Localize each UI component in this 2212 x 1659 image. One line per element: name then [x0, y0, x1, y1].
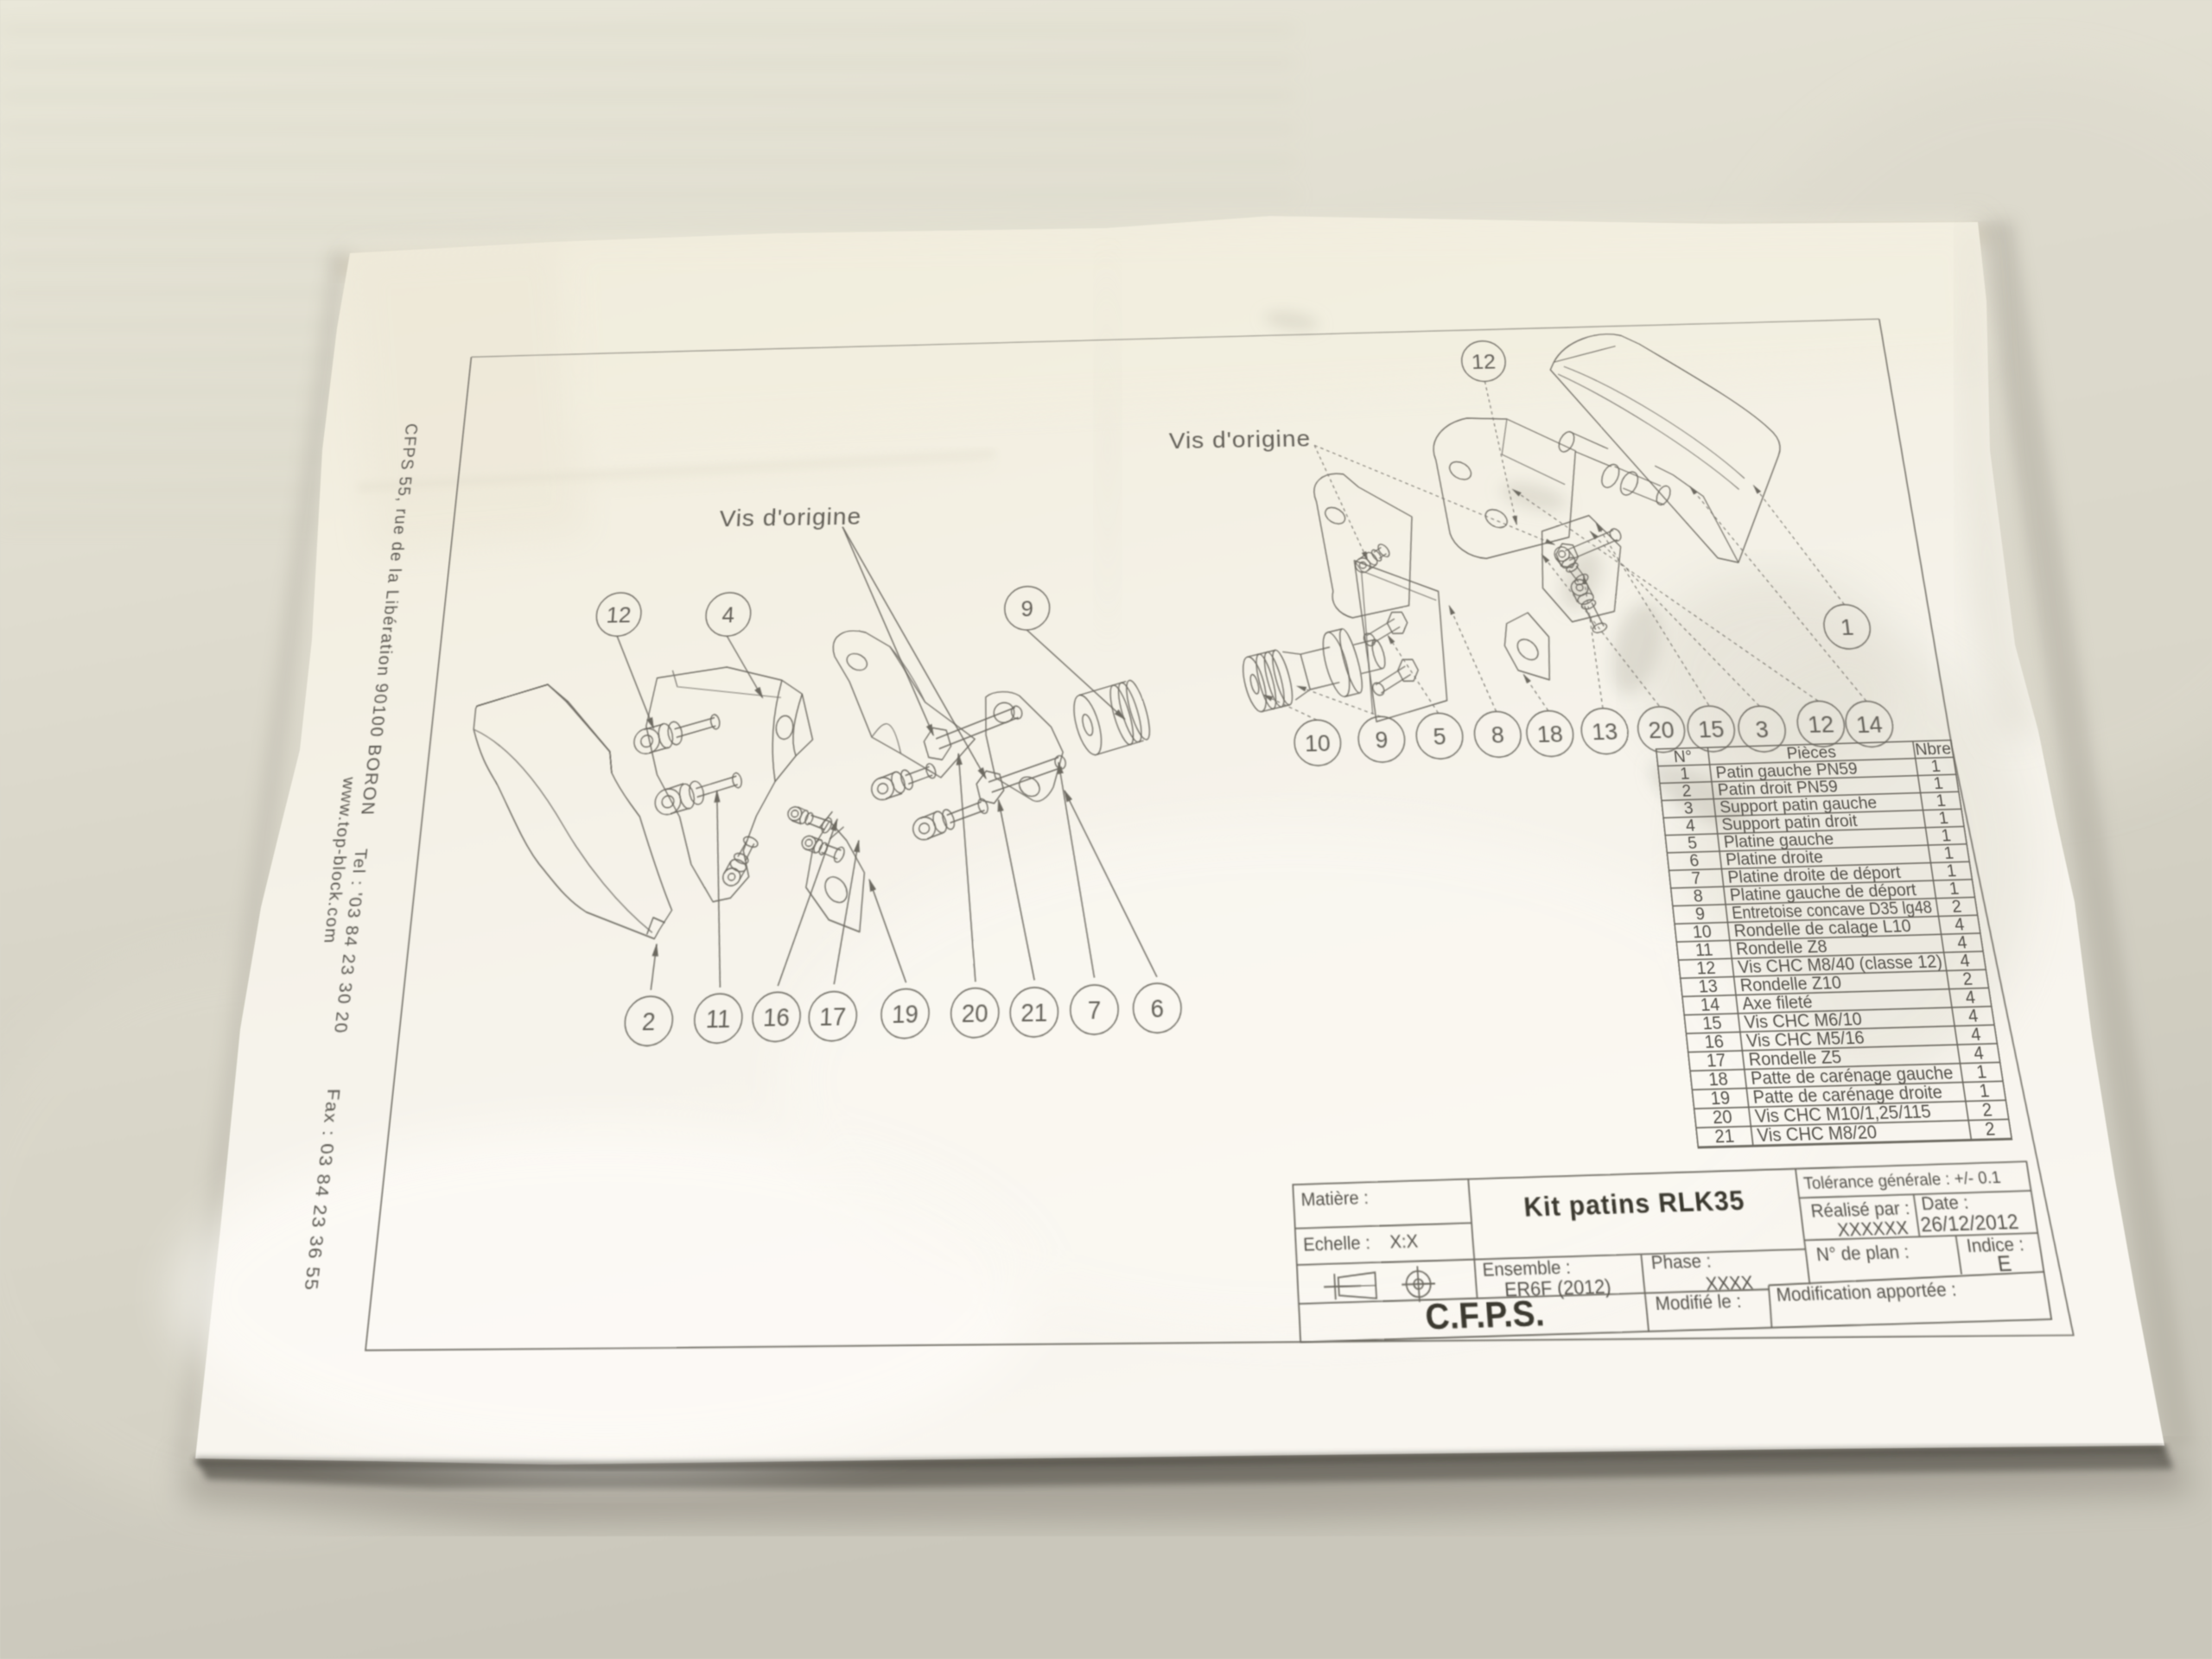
svg-text:N°: N°	[1673, 747, 1694, 766]
svg-text:18: 18	[1707, 1070, 1729, 1090]
svg-text:1: 1	[1929, 757, 1942, 775]
svg-text:Fax : 03 84 23 36 55: Fax : 03 84 23 36 55	[301, 1089, 344, 1292]
svg-text:4: 4	[1954, 915, 1966, 935]
svg-text:20: 20	[1647, 716, 1675, 743]
svg-text:2: 2	[1950, 897, 1962, 916]
svg-text:Echelle :: Echelle :	[1303, 1232, 1371, 1255]
svg-text:11: 11	[705, 1004, 731, 1033]
svg-text:18: 18	[1536, 721, 1564, 747]
svg-text:14: 14	[1700, 995, 1720, 1015]
svg-text:14: 14	[1855, 711, 1885, 738]
svg-text:26/12/2012: 26/12/2012	[1919, 1210, 2020, 1236]
svg-text:4: 4	[1959, 951, 1971, 971]
svg-text:4: 4	[1964, 988, 1976, 1007]
svg-text:13: 13	[1698, 976, 1719, 996]
svg-text:16: 16	[1704, 1032, 1726, 1052]
svg-text:1: 1	[1840, 614, 1855, 639]
svg-text:12: 12	[1695, 958, 1716, 978]
svg-text:12: 12	[606, 602, 632, 627]
svg-text:8: 8	[1491, 721, 1505, 747]
svg-text:Tolérance générale : +/- 0.1: Tolérance générale : +/- 0.1	[1802, 1169, 2002, 1193]
svg-text:20: 20	[962, 999, 988, 1027]
svg-text:8: 8	[1693, 887, 1704, 906]
svg-text:1: 1	[1679, 765, 1690, 783]
svg-text:1: 1	[1975, 1062, 1988, 1083]
svg-text:4: 4	[1956, 933, 1968, 953]
svg-text:9: 9	[1694, 905, 1706, 924]
svg-text:17: 17	[1706, 1051, 1727, 1071]
svg-text:Vis d'origine: Vis d'origine	[719, 504, 862, 532]
svg-text:1: 1	[1932, 774, 1944, 793]
svg-text:2: 2	[1984, 1119, 1997, 1140]
svg-text:1: 1	[1948, 880, 1960, 899]
svg-text:3: 3	[1754, 716, 1770, 742]
svg-text:4: 4	[1967, 1007, 1980, 1027]
svg-text:Modifié le :: Modifié le :	[1655, 1291, 1743, 1315]
svg-text:CFPS 55, rue de la Libération: CFPS 55, rue de la Libération 90100 BORO…	[357, 423, 421, 817]
svg-text:17: 17	[819, 1002, 847, 1031]
svg-text:4: 4	[1969, 1025, 1982, 1045]
svg-text:16: 16	[762, 1003, 790, 1032]
svg-text:4: 4	[1973, 1044, 1986, 1064]
svg-text:1: 1	[1937, 809, 1949, 828]
svg-text:10: 10	[1305, 730, 1332, 757]
svg-text:4: 4	[721, 602, 735, 627]
svg-text:11: 11	[1694, 940, 1714, 960]
svg-text:21: 21	[1020, 998, 1047, 1027]
svg-text:1: 1	[1945, 861, 1957, 880]
svg-text:C.F.P.S.: C.F.P.S.	[1424, 1294, 1546, 1338]
svg-text:2: 2	[1980, 1100, 1993, 1121]
svg-text:1: 1	[1935, 791, 1947, 810]
svg-text:Modification apportée :: Modification apportée :	[1775, 1279, 1957, 1306]
svg-text:9: 9	[1375, 727, 1389, 753]
svg-text:13: 13	[1591, 718, 1618, 745]
svg-text:Kit patins RLK35: Kit patins RLK35	[1522, 1186, 1746, 1224]
svg-text:N° de plan :: N° de plan :	[1815, 1242, 1910, 1266]
svg-text:19: 19	[892, 1000, 919, 1028]
svg-text:20: 20	[1712, 1107, 1733, 1128]
svg-text:XXXXXX: XXXXXX	[1836, 1217, 1910, 1241]
svg-text:15: 15	[1697, 715, 1726, 742]
svg-text:15: 15	[1701, 1014, 1723, 1033]
svg-text:Nbre: Nbre	[1914, 740, 1952, 759]
svg-text:21: 21	[1713, 1126, 1735, 1147]
svg-text:9: 9	[1020, 596, 1033, 621]
svg-text:10: 10	[1692, 922, 1713, 942]
svg-text:Vis CHC M8/20: Vis CHC M8/20	[1757, 1122, 1878, 1146]
svg-text:1: 1	[1978, 1081, 1991, 1102]
svg-text:12: 12	[1807, 711, 1835, 738]
svg-text:7: 7	[1691, 869, 1702, 888]
svg-text:6: 6	[1688, 851, 1700, 870]
svg-text:2: 2	[1961, 969, 1974, 989]
svg-text:12: 12	[1471, 350, 1497, 373]
svg-text:19: 19	[1710, 1088, 1732, 1109]
svg-text:Vis d'origine: Vis d'origine	[1169, 426, 1312, 454]
svg-text:5: 5	[1433, 723, 1446, 749]
svg-text:2: 2	[641, 1007, 656, 1036]
svg-text:5: 5	[1687, 834, 1698, 853]
svg-text:1: 1	[1940, 826, 1952, 845]
svg-text:7: 7	[1088, 995, 1101, 1024]
svg-text:Matière :: Matière :	[1300, 1187, 1370, 1210]
svg-text:1: 1	[1942, 844, 1955, 863]
svg-text:X:X: X:X	[1389, 1231, 1420, 1253]
svg-text:4: 4	[1685, 817, 1696, 836]
svg-text:6: 6	[1150, 994, 1164, 1022]
svg-text:Phase :: Phase :	[1650, 1250, 1713, 1274]
